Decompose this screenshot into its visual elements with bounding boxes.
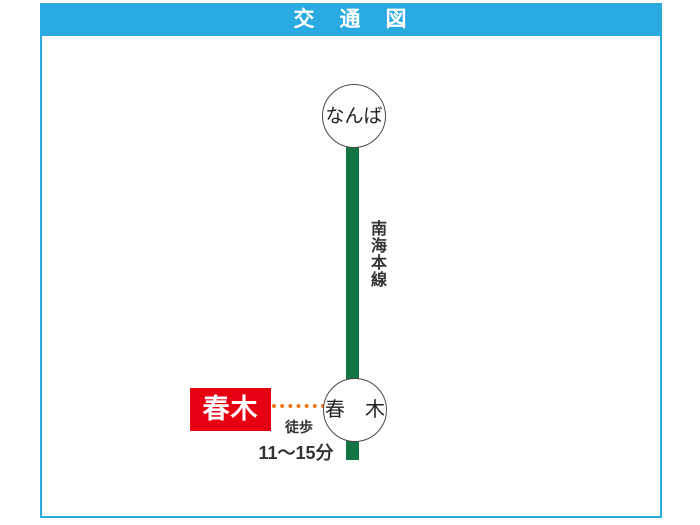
station-circle-namba: なんば: [322, 84, 386, 148]
station-circle-haruki: 春 木: [323, 378, 387, 442]
station-label-namba: なんば: [325, 107, 382, 126]
rail-line-name: 南海本線: [364, 220, 388, 288]
walk-mode-label: 徒歩: [268, 417, 330, 437]
property-name-label: 春木: [203, 396, 259, 423]
header-bar: 交 通 図: [40, 3, 662, 36]
walk-dotted-line: [272, 404, 325, 408]
station-label-haruki: 春 木: [325, 400, 385, 420]
transit-map: 交 通 図 南海本線 なんば 春 木 春木 徒歩 11〜15分: [0, 0, 700, 525]
walk-duration-label: 11〜15分: [242, 439, 350, 465]
page-title: 交 通 図: [294, 9, 409, 30]
property-name-box: 春木: [190, 388, 271, 431]
